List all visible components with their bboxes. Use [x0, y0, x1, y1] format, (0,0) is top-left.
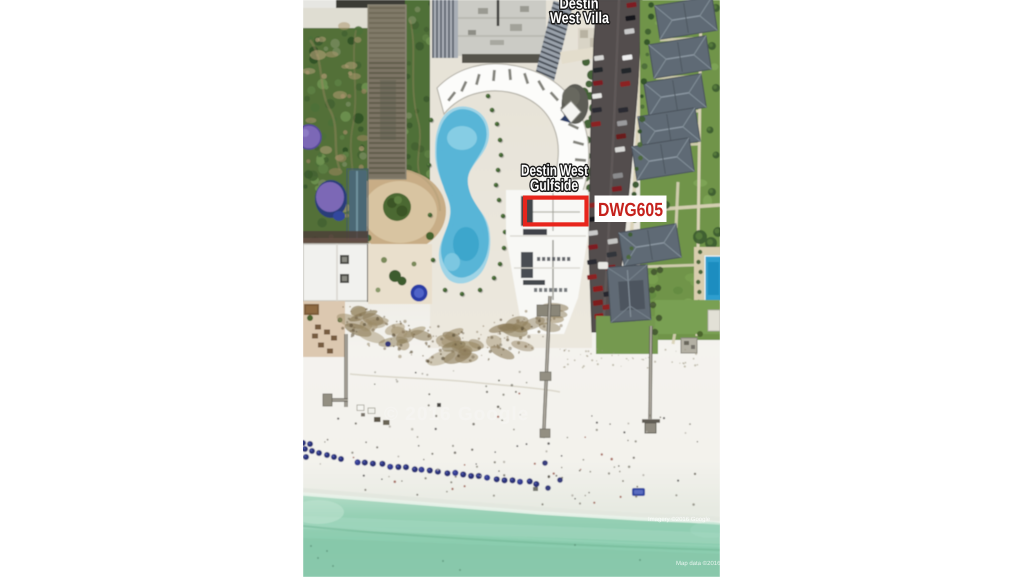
svg-text:Map data ©2016: Map data ©2016 — [676, 560, 721, 567]
svg-text:Gulfside: Gulfside — [530, 177, 578, 194]
svg-text:West Villa: West Villa — [550, 10, 609, 27]
svg-text:© 2016 Google: © 2016 Google — [384, 404, 529, 425]
svg-text:DWG605: DWG605 — [598, 200, 663, 221]
svg-text:Imagery ©2016 Google: Imagery ©2016 Google — [648, 516, 711, 523]
